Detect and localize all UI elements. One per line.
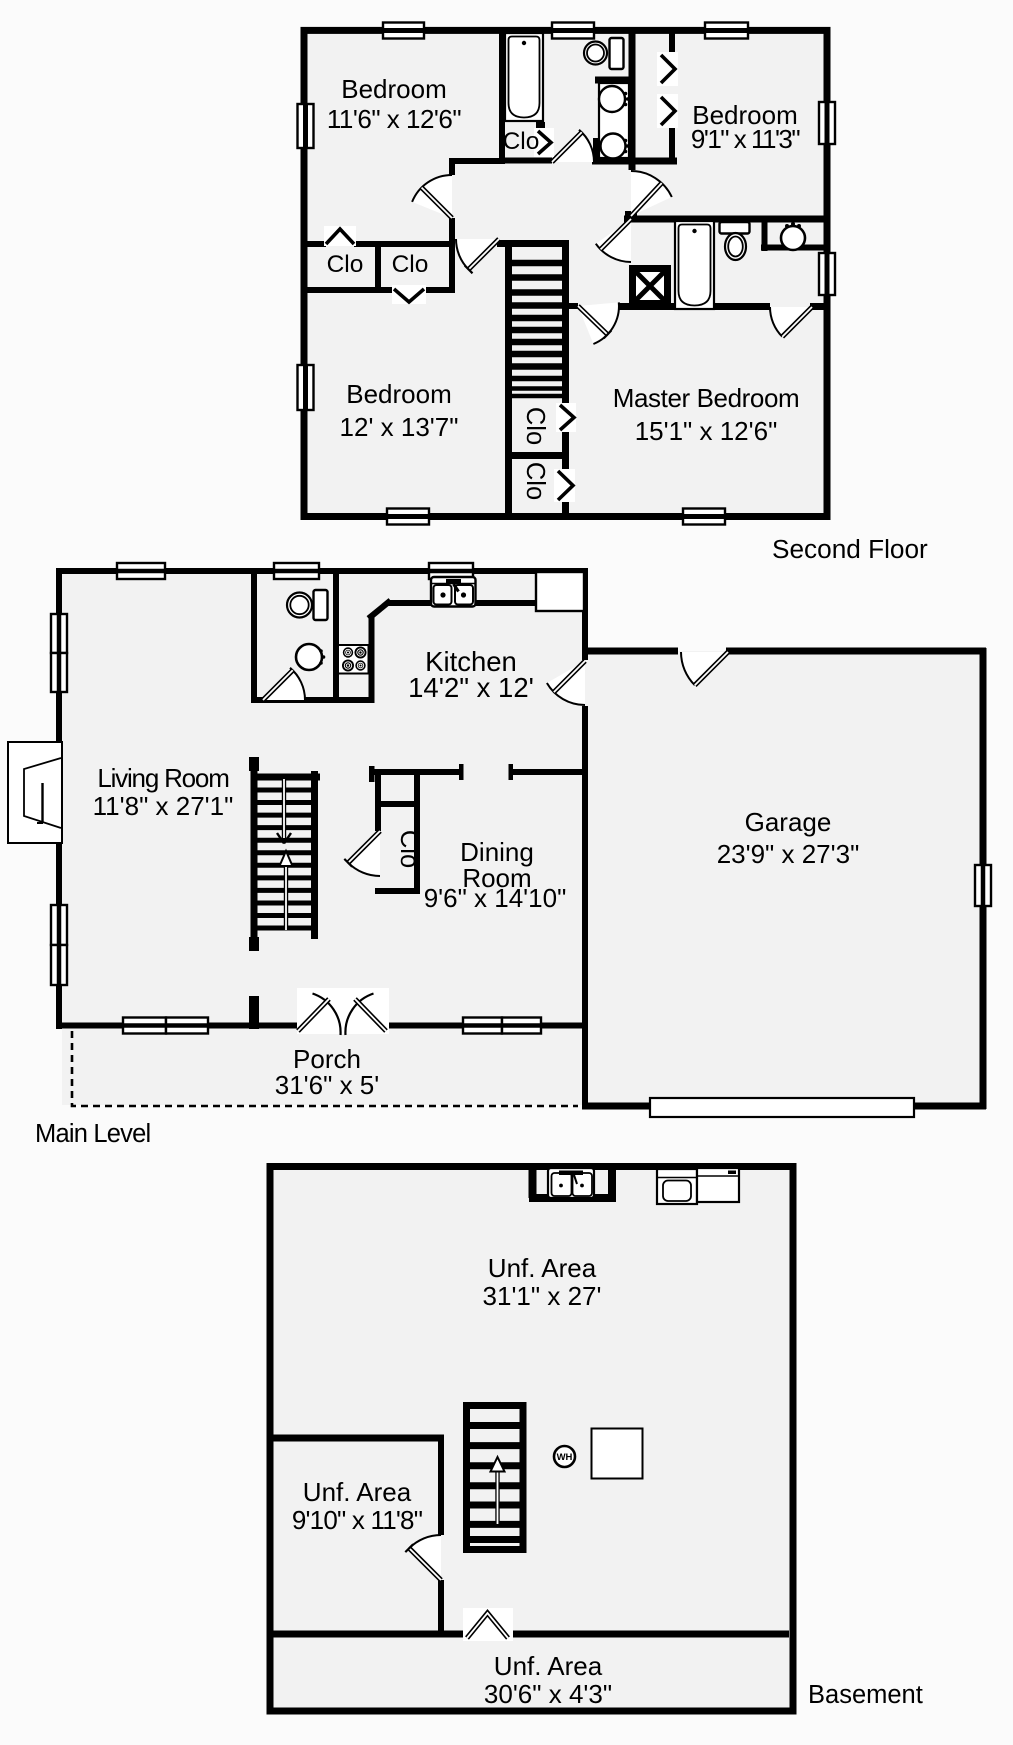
svg-text:Unf. Area: Unf. Area bbox=[488, 1253, 597, 1283]
svg-text:Bedroom: Bedroom bbox=[346, 379, 452, 409]
svg-text:Master Bedroom: Master Bedroom bbox=[613, 383, 800, 413]
svg-text:30'6" x 4'3": 30'6" x 4'3" bbox=[484, 1679, 612, 1709]
svg-text:9'6" x 14'10": 9'6" x 14'10" bbox=[424, 883, 567, 913]
svg-text:9'1" x 11'3": 9'1" x 11'3" bbox=[691, 124, 800, 154]
svg-text:Clo: Clo bbox=[392, 251, 429, 278]
svg-text:Clo: Clo bbox=[395, 830, 423, 868]
svg-text:Basement: Basement bbox=[808, 1681, 923, 1709]
svg-text:WH: WH bbox=[557, 1452, 573, 1463]
svg-text:12' x 13'7": 12' x 13'7" bbox=[340, 412, 459, 442]
svg-text:Main Level: Main Level bbox=[35, 1120, 150, 1148]
svg-text:Second Floor: Second Floor bbox=[772, 534, 928, 564]
svg-text:15'1" x 12'6": 15'1" x 12'6" bbox=[635, 416, 778, 446]
svg-text:Clo: Clo bbox=[521, 407, 549, 445]
svg-text:31'1" x 27': 31'1" x 27' bbox=[483, 1281, 602, 1311]
svg-text:Clo: Clo bbox=[521, 462, 549, 500]
svg-text:Clo: Clo bbox=[327, 251, 364, 278]
svg-text:Unf. Area: Unf. Area bbox=[303, 1477, 412, 1507]
svg-text:11'6" x 12'6": 11'6" x 12'6" bbox=[327, 104, 461, 134]
svg-text:Unf. Area: Unf. Area bbox=[494, 1651, 603, 1681]
svg-text:23'9" x 27'3": 23'9" x 27'3" bbox=[717, 839, 860, 869]
svg-text:31'6" x 5': 31'6" x 5' bbox=[275, 1070, 379, 1100]
svg-text:9'10" x 11'8": 9'10" x 11'8" bbox=[292, 1505, 423, 1535]
svg-text:Clo: Clo bbox=[503, 128, 540, 155]
svg-text:Garage: Garage bbox=[745, 807, 832, 837]
svg-text:11'8" x 27'1": 11'8" x 27'1" bbox=[93, 791, 234, 821]
svg-text:Bedroom: Bedroom bbox=[341, 74, 447, 104]
svg-text:14'2" x 12': 14'2" x 12' bbox=[408, 672, 534, 703]
svg-text:Living Room: Living Room bbox=[97, 763, 228, 793]
